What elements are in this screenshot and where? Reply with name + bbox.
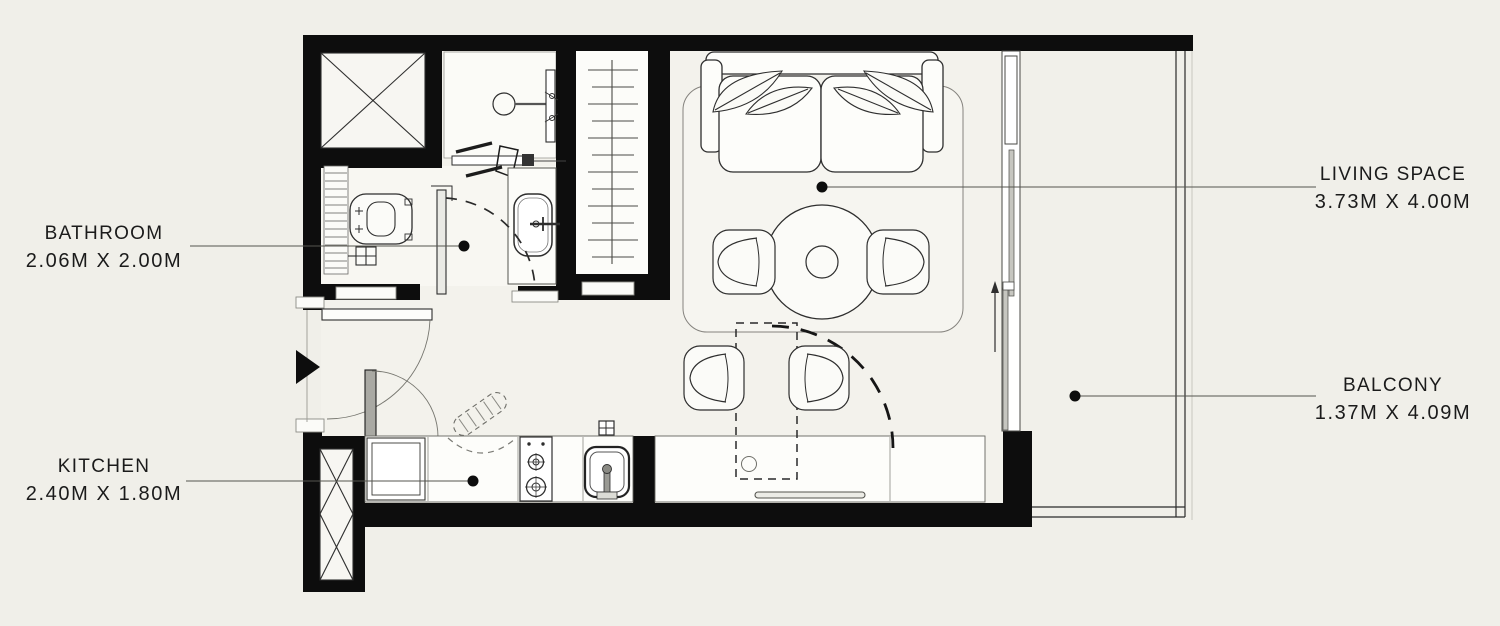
room-dimensions: 2.06M X 2.00M (6, 249, 202, 273)
room-name: LIVING SPACE (1292, 160, 1494, 190)
room-label-balcony: BALCONY 1.37M X 4.09M (1292, 371, 1494, 425)
oven-handle (755, 492, 865, 498)
room-dimensions: 3.73M X 4.00M (1292, 190, 1494, 214)
floor-plan-page: BATHROOM 2.06M X 2.00M KITCHEN 2.40M X 1… (0, 0, 1500, 626)
leader-dot-living-space (817, 182, 828, 193)
entry-arrow (296, 350, 320, 384)
duct-shaft-kitchen (320, 449, 353, 580)
bathroom-vanity (508, 168, 560, 284)
dining-chair (789, 346, 849, 410)
room-label-living-space: LIVING SPACE 3.73M X 4.00M (1292, 160, 1494, 214)
stove (520, 437, 552, 501)
dining-chair (867, 230, 929, 294)
fridge (367, 438, 425, 500)
duct-shaft (321, 53, 425, 148)
room-dimensions: 1.37M X 4.09M (1292, 401, 1494, 425)
towel-radiator (324, 166, 348, 274)
room-label-kitchen: KITCHEN 2.40M X 1.80M (6, 452, 202, 506)
room-name: KITCHEN (6, 452, 202, 482)
leader-dot-kitchen (468, 476, 479, 487)
room-label-bathroom: BATHROOM 2.06M X 2.00M (6, 219, 202, 273)
dining-chair (684, 346, 744, 410)
room-name: BALCONY (1292, 371, 1494, 401)
sliding-balcony-door (1002, 51, 1020, 431)
toilet (350, 194, 412, 244)
dining-chair (713, 230, 775, 294)
leader-dot-bathroom (459, 241, 470, 252)
sofa (701, 52, 943, 172)
round-dining-table (765, 205, 879, 319)
room-dimensions: 2.40M X 1.80M (6, 482, 202, 506)
room-name: BATHROOM (6, 219, 202, 249)
floor-plan-drawing (0, 0, 1500, 626)
leader-dot-balcony (1070, 391, 1081, 402)
